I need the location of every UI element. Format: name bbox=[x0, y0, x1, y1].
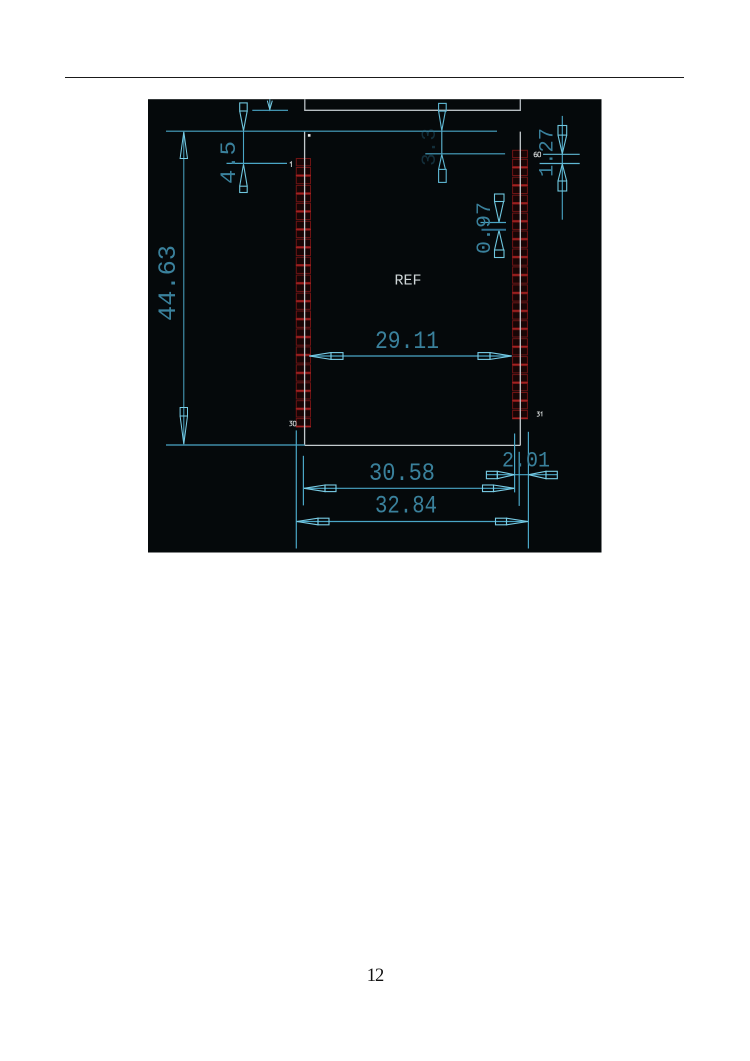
svg-text:REF: REF bbox=[395, 274, 422, 290]
svg-text:32.84: 32.84 bbox=[375, 492, 437, 521]
svg-text:29.11: 29.11 bbox=[375, 327, 439, 356]
svg-text:3.3: 3.3 bbox=[419, 128, 442, 166]
svg-text:30.58: 30.58 bbox=[369, 459, 435, 488]
svg-text:4.5: 4.5 bbox=[217, 141, 242, 184]
svg-text:2.01: 2.01 bbox=[502, 449, 550, 474]
svg-text:0.97: 0.97 bbox=[474, 202, 497, 254]
svg-text:44.63: 44.63 bbox=[154, 245, 183, 321]
